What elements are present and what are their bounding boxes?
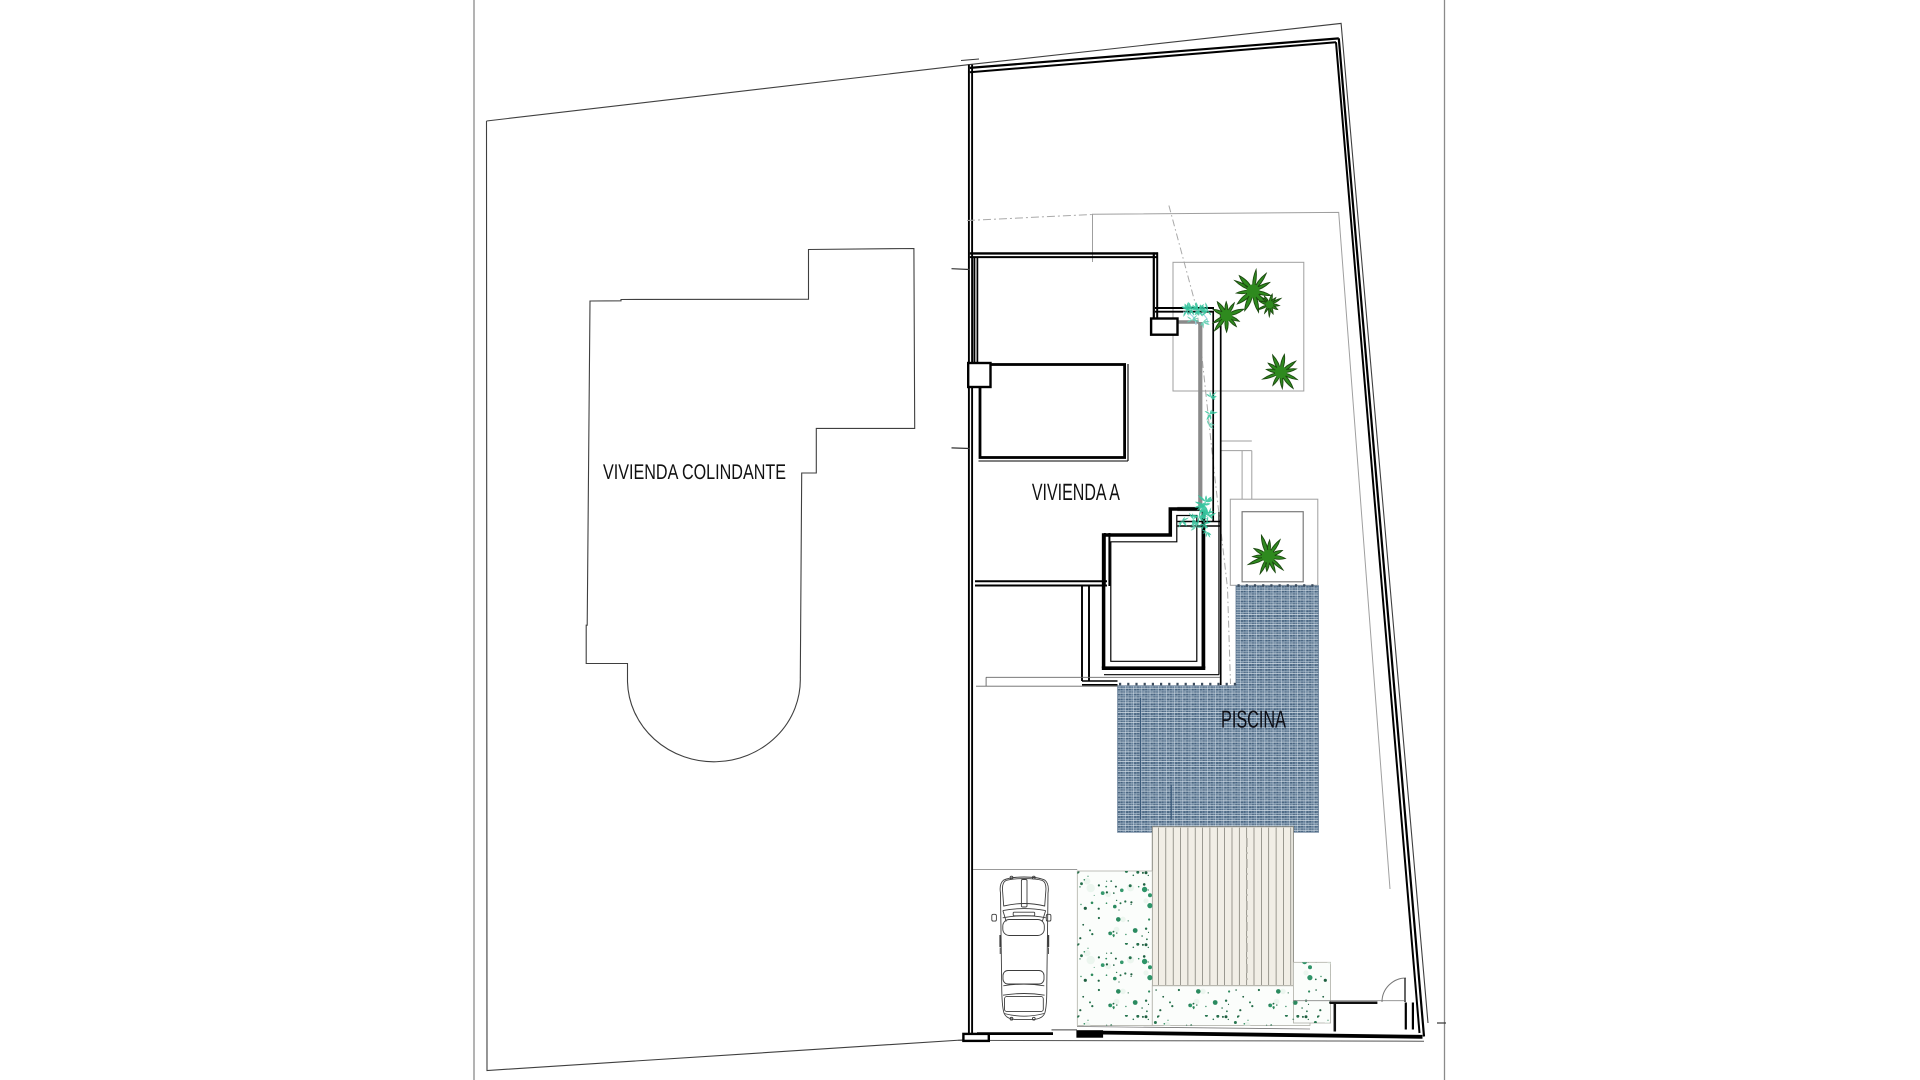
- svg-text:VIVIENDA COLINDANTE: VIVIENDA COLINDANTE: [603, 460, 786, 484]
- svg-text:VIVIENDA A: VIVIENDA A: [1032, 480, 1120, 506]
- svg-text:PISCINA: PISCINA: [1221, 707, 1287, 734]
